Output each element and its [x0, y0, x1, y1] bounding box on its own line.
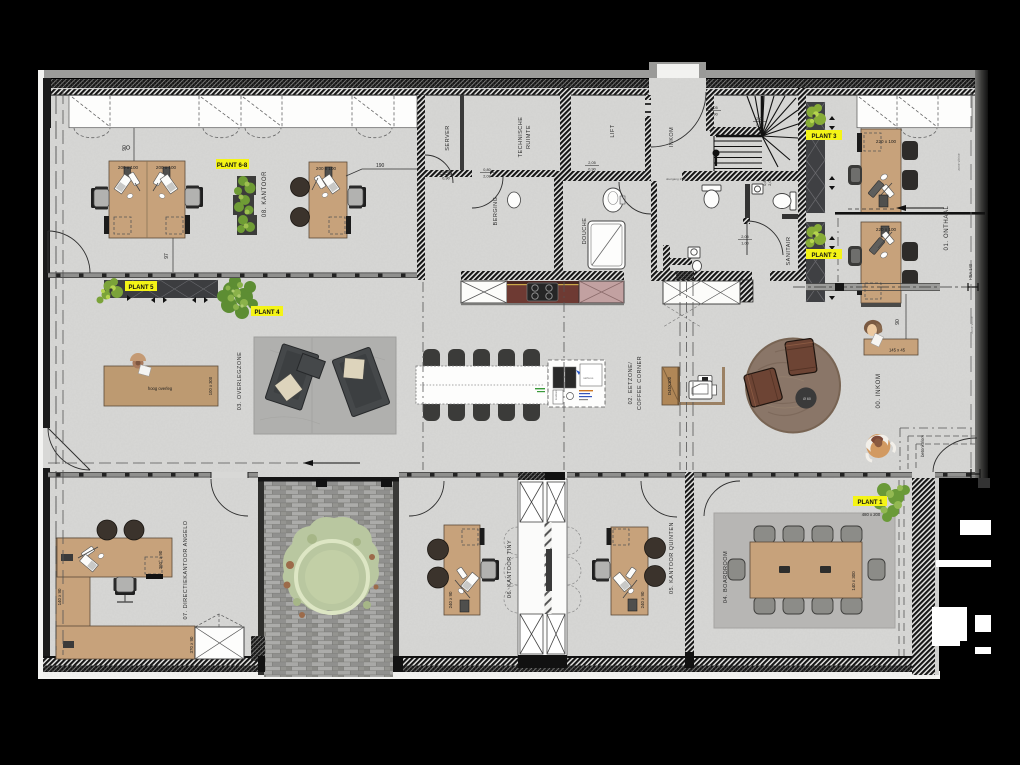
- svg-text:SANITAIR: SANITAIR: [786, 237, 792, 266]
- svg-text:05. KANTOOR QUINTEN: 05. KANTOOR QUINTEN: [669, 522, 675, 594]
- svg-text:BERGING: BERGING: [493, 197, 499, 226]
- svg-text:200 x 100: 200 x 100: [118, 165, 139, 170]
- svg-text:PLANT 4: PLANT 4: [254, 310, 280, 316]
- svg-text:0,90: 0,90: [756, 123, 763, 127]
- svg-text:LIFT: LIFT: [610, 124, 616, 137]
- svg-text:240 x 90: 240 x 90: [448, 591, 453, 608]
- svg-text:240 x 90: 240 x 90: [640, 591, 645, 608]
- svg-text:2,05: 2,05: [741, 235, 748, 239]
- svg-text:06. KANTOOR TINY: 06. KANTOOR TINY: [507, 540, 513, 598]
- svg-text:2,08: 2,08: [768, 178, 772, 185]
- svg-text:PLANT 5: PLANT 5: [128, 285, 154, 291]
- svg-text:08. KANTOOR: 08. KANTOOR: [262, 171, 268, 217]
- svg-text:200 x 100: 200 x 100: [156, 165, 177, 170]
- svg-text:2,05: 2,05: [442, 170, 449, 174]
- svg-text:190: 190: [376, 163, 385, 169]
- svg-text:360° x 90: 360° x 90: [158, 550, 163, 569]
- svg-text:0,80: 0,80: [763, 178, 767, 185]
- svg-text:370 x 90: 370 x 90: [189, 636, 194, 653]
- svg-text:2,05: 2,05: [756, 117, 763, 121]
- svg-text:1,00: 1,00: [741, 241, 748, 245]
- svg-text:RUIMTE: RUIMTE: [526, 125, 532, 149]
- svg-text:145 x 45: 145 x 45: [889, 348, 906, 353]
- svg-text:03. OVERLEGZONE: 03. OVERLEGZONE: [237, 352, 243, 411]
- svg-text:PLANT 2: PLANT 2: [811, 253, 837, 259]
- svg-text:07. DIRECTIEKANTOOR ANGELO: 07. DIRECTIEKANTOOR ANGELO: [183, 520, 189, 619]
- svg-text:100 x 300: 100 x 300: [208, 376, 213, 395]
- svg-text:140 x 90: 140 x 90: [57, 588, 62, 605]
- svg-text:220 x 100: 220 x 100: [876, 227, 897, 232]
- svg-text:200 x 100: 200 x 100: [316, 166, 337, 171]
- svg-text:betonkolom: betonkolom: [920, 435, 925, 457]
- svg-text:PLANT 1: PLANT 1: [857, 500, 883, 506]
- svg-text:HEA 140: HEA 140: [968, 263, 973, 280]
- svg-text:doorgang 1/2 u: doorgang 1/2 u: [666, 177, 687, 181]
- svg-text:140 x 300: 140 x 300: [851, 571, 856, 591]
- svg-text:90: 90: [895, 319, 901, 325]
- svg-text:0,90: 0,90: [442, 176, 449, 180]
- svg-text:480 x 200: 480 x 200: [862, 512, 881, 517]
- svg-text:COFFEE CORNER: COFFEE CORNER: [637, 356, 643, 410]
- svg-text:Ø 60: Ø 60: [803, 397, 811, 401]
- svg-text:zone vitrine: zone vitrine: [957, 153, 961, 170]
- svg-text:0,90: 0,90: [710, 112, 717, 116]
- svg-text:97: 97: [164, 253, 170, 259]
- svg-text:zone vitrine: zone vitrine: [970, 316, 974, 333]
- svg-text:2,08: 2,08: [483, 174, 490, 178]
- svg-text:DOUCHE: DOUCHE: [582, 218, 588, 245]
- svg-text:2,05: 2,05: [710, 106, 717, 110]
- svg-text:2,05: 2,05: [588, 161, 595, 165]
- svg-text:02. EETZONE/: 02. EETZONE/: [628, 362, 634, 405]
- svg-text:SERVER: SERVER: [445, 125, 451, 151]
- svg-text:PLANT 3: PLANT 3: [811, 134, 837, 140]
- svg-text:PLANT 6-8: PLANT 6-8: [217, 163, 248, 169]
- svg-text:D45X100: D45X100: [667, 376, 672, 395]
- svg-text:220 x 100: 220 x 100: [876, 139, 897, 144]
- svg-text:hoog overleg: hoog overleg: [148, 386, 173, 391]
- svg-text:00. INKOM: 00. INKOM: [876, 373, 882, 408]
- svg-text:0,80: 0,80: [483, 168, 490, 172]
- svg-text:koelkast: koelkast: [554, 390, 558, 400]
- svg-text:TECHNISCHE: TECHNISCHE: [518, 117, 524, 158]
- svg-text:nalhuss: nalhuss: [583, 376, 594, 380]
- svg-text:INKOM: INKOM: [669, 127, 675, 148]
- svg-text:90: 90: [122, 145, 128, 151]
- svg-text:01. ONTHAAL: 01. ONTHAAL: [944, 205, 950, 250]
- svg-text:0,90: 0,90: [588, 167, 595, 171]
- svg-text:04. BOARDROOM: 04. BOARDROOM: [723, 551, 729, 603]
